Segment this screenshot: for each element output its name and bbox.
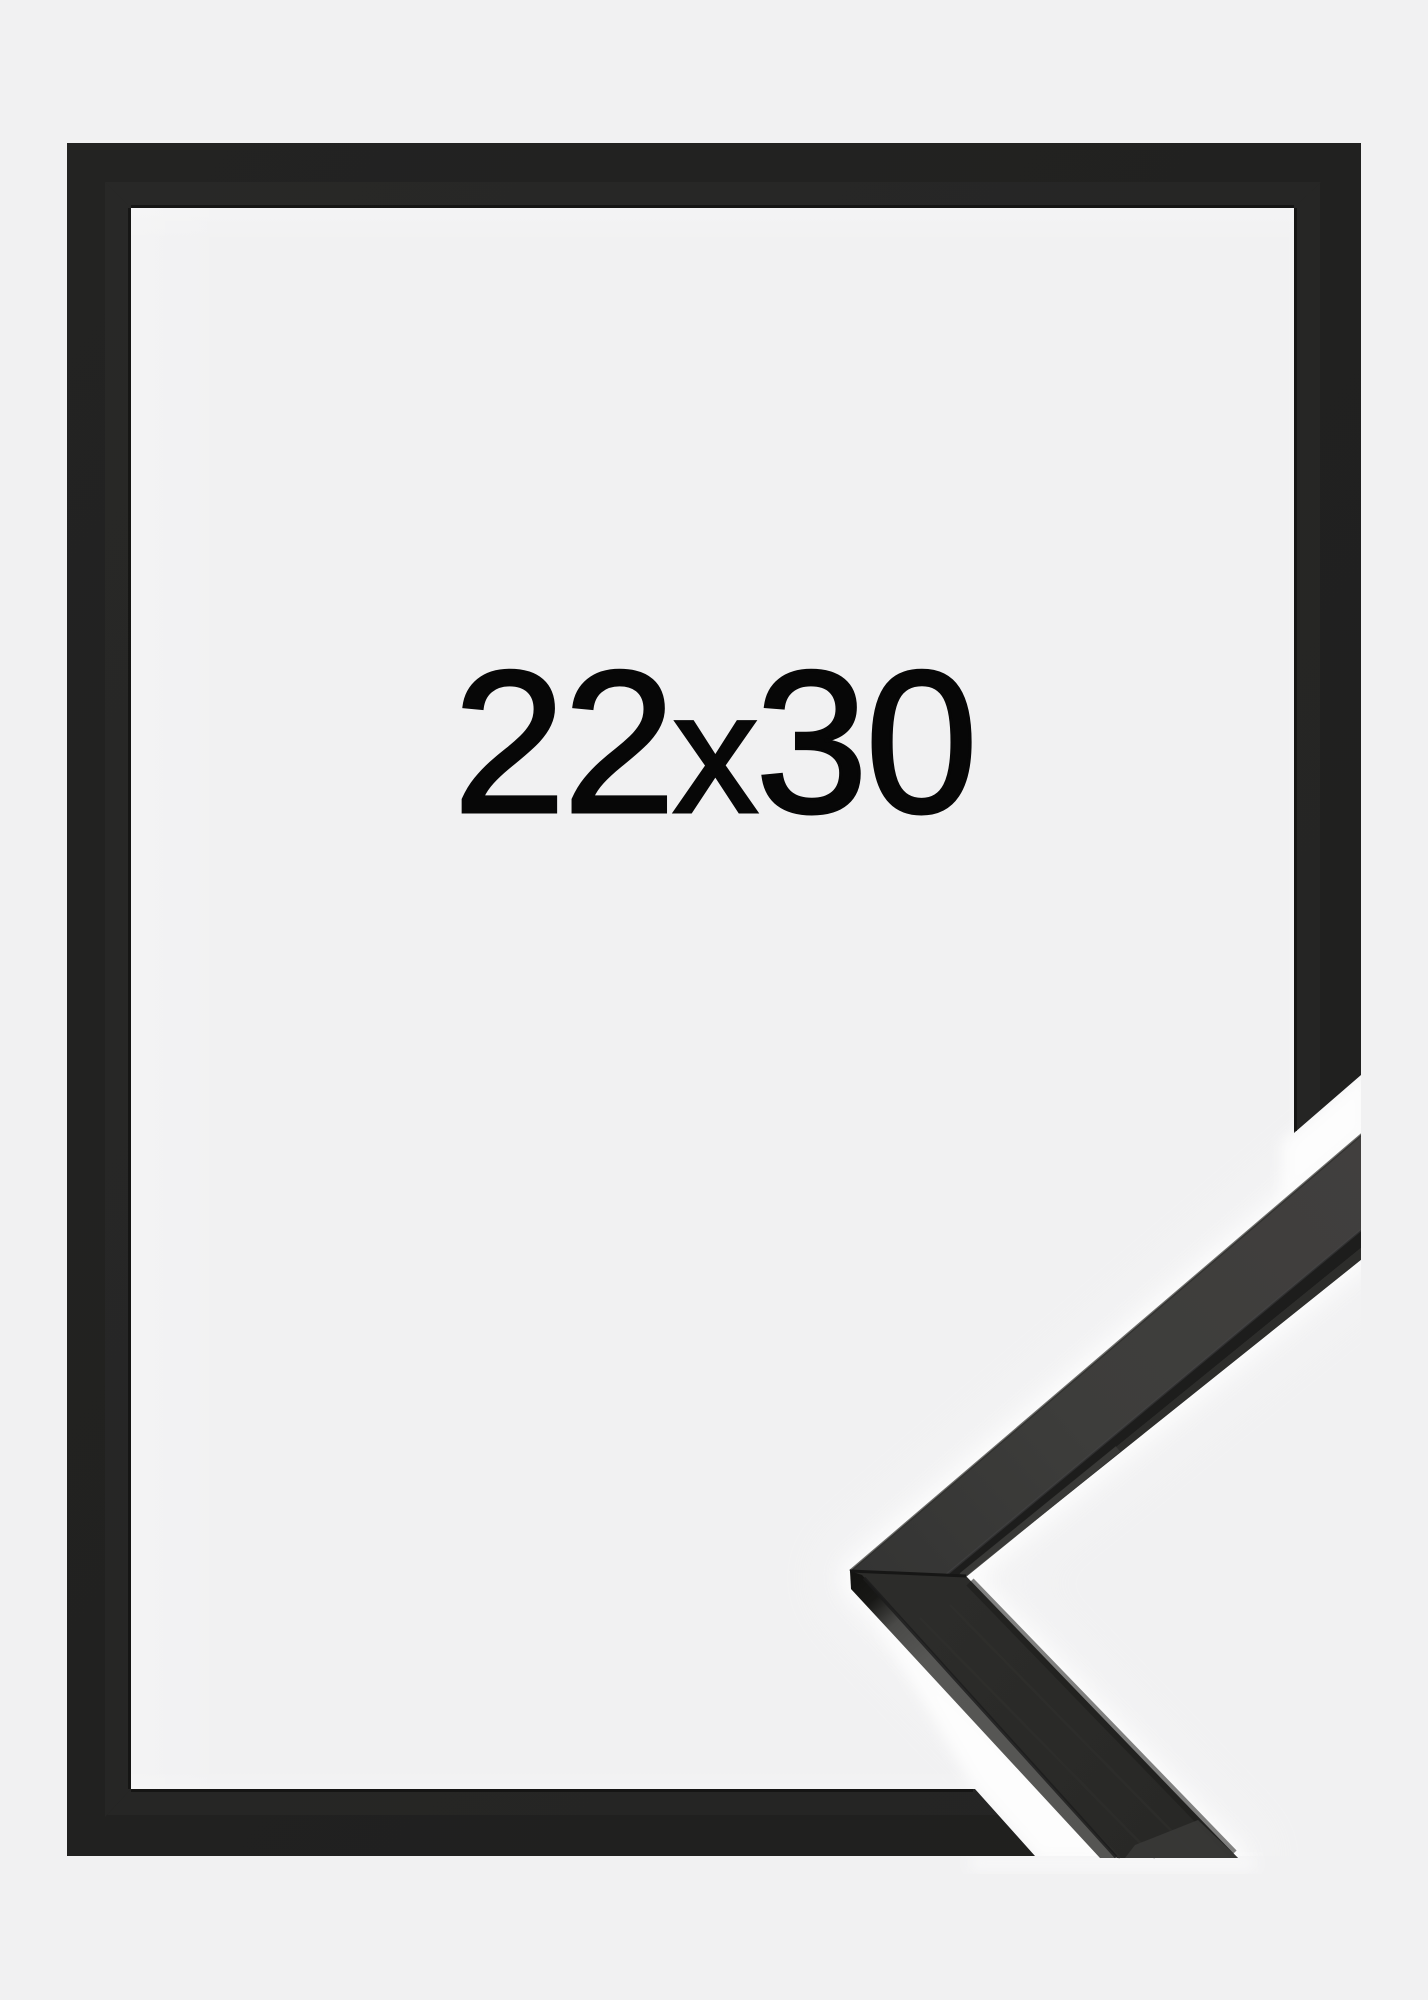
svg-text:22x30: 22x30 <box>453 629 975 856</box>
